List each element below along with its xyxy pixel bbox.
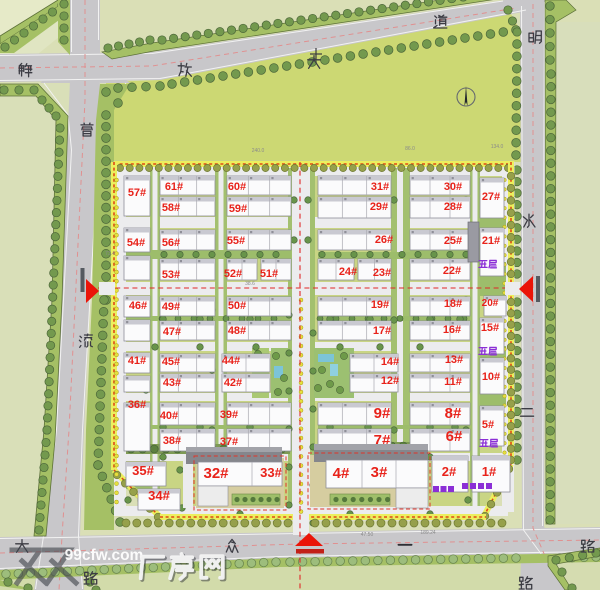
svg-text:5#: 5# (482, 419, 494, 431)
svg-text:55#: 55# (227, 235, 245, 247)
svg-text:38.6: 38.6 (245, 281, 255, 287)
svg-text:3#: 3# (371, 464, 388, 481)
svg-text:49#: 49# (162, 301, 180, 313)
svg-text:56#: 56# (162, 237, 180, 249)
svg-text:25#: 25# (444, 235, 462, 247)
svg-text:18#: 18# (444, 298, 462, 310)
svg-text:48#: 48# (228, 325, 246, 337)
svg-text:61#: 61# (165, 181, 183, 193)
svg-text:40#: 40# (160, 410, 178, 422)
svg-text:58#: 58# (162, 202, 180, 214)
svg-text:22#: 22# (443, 265, 461, 277)
svg-text:189.24: 189.24 (420, 530, 436, 536)
svg-text:50#: 50# (228, 300, 246, 312)
svg-text:57#: 57# (128, 187, 146, 199)
svg-text:30#: 30# (444, 181, 462, 193)
svg-text:52#: 52# (224, 268, 242, 280)
svg-text:31#: 31# (371, 181, 389, 193)
svg-text:36#: 36# (128, 399, 146, 411)
svg-text:73.4: 73.4 (105, 251, 115, 257)
svg-text:37#: 37# (220, 436, 238, 448)
svg-text:60#: 60# (228, 181, 246, 193)
svg-text:34#: 34# (148, 488, 170, 503)
svg-text:16#: 16# (443, 324, 461, 336)
svg-text:23#: 23# (373, 267, 391, 279)
svg-text:29#: 29# (370, 201, 388, 213)
svg-text:44#: 44# (222, 355, 240, 367)
svg-text:19#: 19# (371, 299, 389, 311)
svg-text:8#: 8# (445, 405, 462, 422)
svg-text:17#: 17# (373, 325, 391, 337)
svg-text:99cfw.com: 99cfw.com (65, 547, 144, 564)
svg-text:51#: 51# (260, 268, 278, 280)
svg-text:4#: 4# (333, 465, 350, 482)
svg-text:59#: 59# (229, 203, 247, 215)
svg-text:26#: 26# (375, 234, 393, 246)
svg-text:42#: 42# (224, 377, 242, 389)
svg-text:53#: 53# (162, 269, 180, 281)
svg-text:14#: 14# (381, 356, 399, 368)
svg-text:32#: 32# (203, 465, 229, 482)
svg-text:35#: 35# (132, 463, 154, 478)
svg-text:13#: 13# (445, 354, 463, 366)
svg-text:43#: 43# (163, 377, 181, 389)
svg-text:9#: 9# (374, 405, 391, 422)
svg-text:15#: 15# (481, 322, 499, 334)
svg-text:46#: 46# (129, 300, 147, 312)
svg-text:24#: 24# (339, 266, 357, 278)
svg-text:33#: 33# (260, 465, 282, 480)
svg-text:47.50: 47.50 (361, 532, 374, 538)
svg-text:41#: 41# (128, 355, 146, 367)
svg-text:47#: 47# (163, 326, 181, 338)
svg-text:45#: 45# (162, 356, 180, 368)
svg-text:11#: 11# (444, 376, 462, 388)
svg-text:1#: 1# (482, 464, 497, 479)
svg-text:20#: 20# (482, 298, 499, 309)
svg-text:38#: 38# (163, 435, 181, 447)
svg-text:10#: 10# (482, 371, 500, 383)
svg-text:6#: 6# (446, 428, 463, 445)
svg-text:86.0: 86.0 (405, 146, 415, 152)
svg-text:12#: 12# (381, 375, 399, 387)
svg-text:21#: 21# (482, 235, 500, 247)
svg-text:27#: 27# (482, 191, 500, 203)
svg-text:134.0: 134.0 (491, 144, 504, 150)
svg-text:28#: 28# (444, 201, 462, 213)
svg-text:54#: 54# (127, 237, 145, 249)
svg-text:2#: 2# (442, 464, 457, 479)
svg-text:240.0: 240.0 (252, 148, 265, 154)
svg-text:39#: 39# (220, 409, 238, 421)
